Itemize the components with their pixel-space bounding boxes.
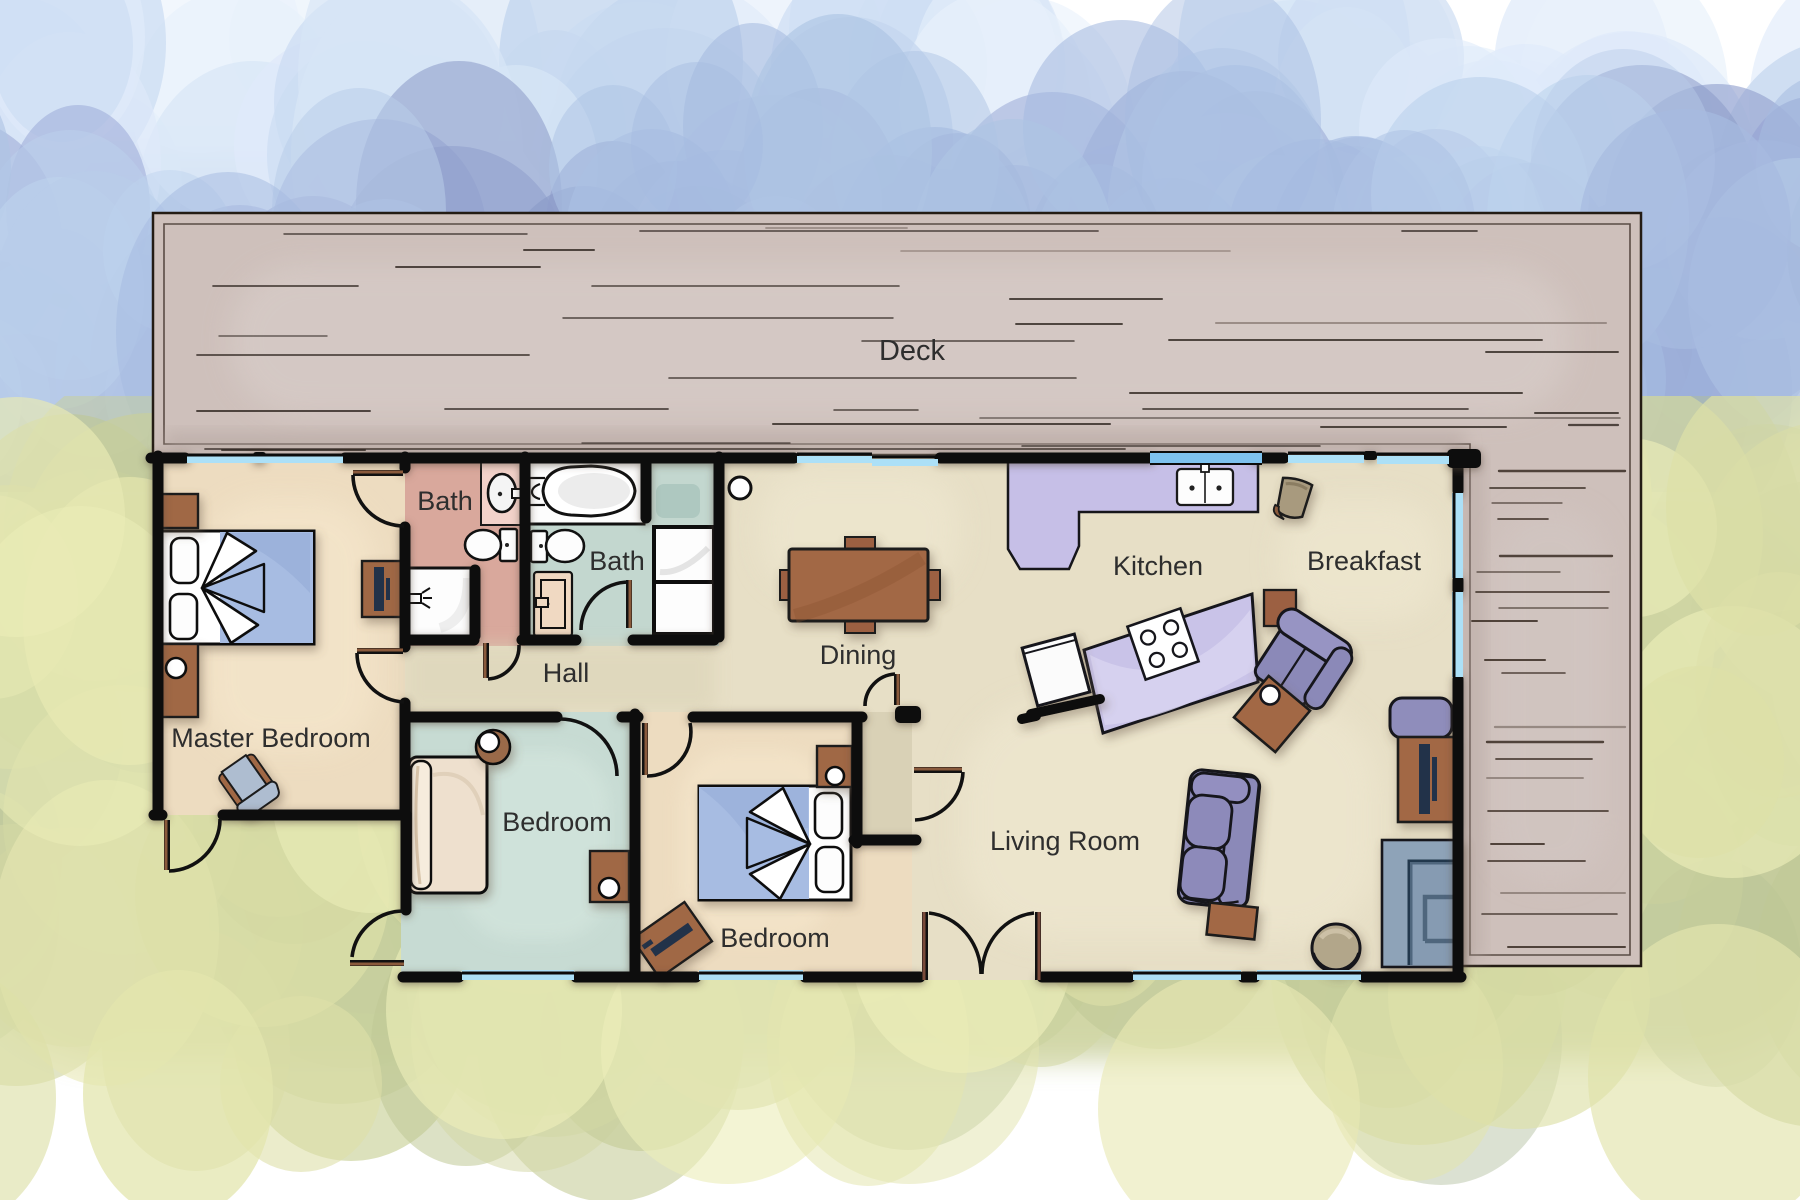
svg-text:Bath: Bath: [589, 546, 645, 576]
svg-text:Dining: Dining: [820, 640, 897, 670]
svg-text:Breakfast: Breakfast: [1307, 546, 1422, 576]
svg-text:Bedroom: Bedroom: [720, 923, 830, 953]
svg-text:Deck: Deck: [879, 335, 946, 367]
svg-text:Hall: Hall: [543, 658, 590, 688]
svg-text:Bedroom: Bedroom: [502, 807, 612, 837]
svg-text:Master Bedroom: Master Bedroom: [171, 723, 371, 753]
svg-text:Bath: Bath: [417, 486, 473, 516]
svg-text:Kitchen: Kitchen: [1113, 551, 1203, 581]
svg-text:Living Room: Living Room: [990, 826, 1140, 856]
